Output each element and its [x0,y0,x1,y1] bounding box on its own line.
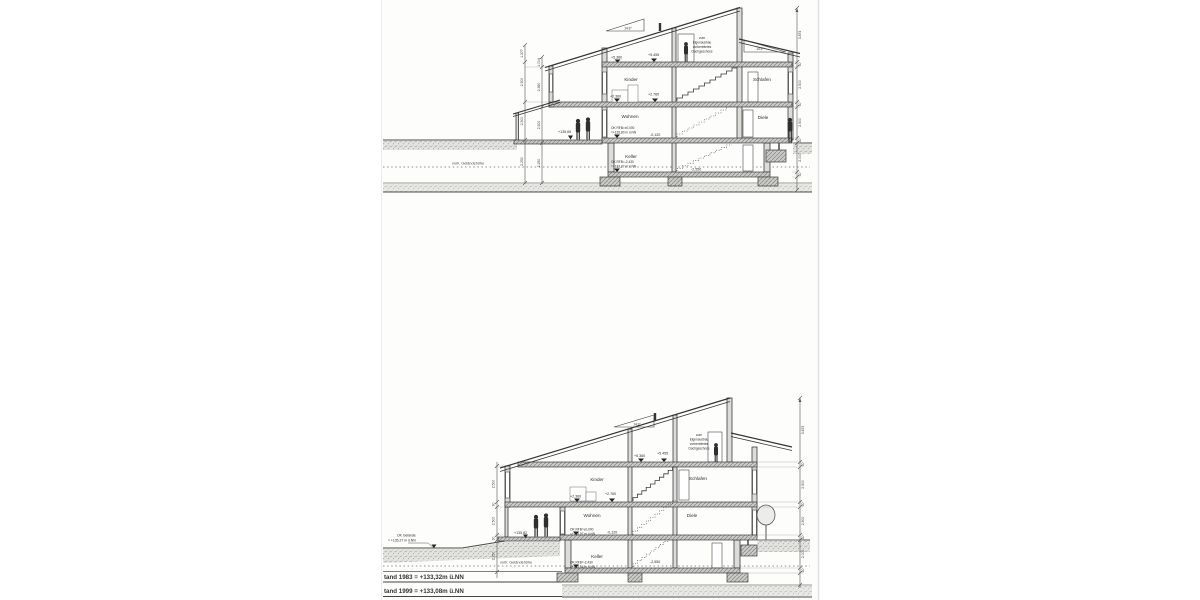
attic-note-line: vorbereitetes [693,45,712,49]
attic-note-line: zum [699,36,705,40]
level-mark: OK RFB=±0,000=+135,97 m ü.NN [570,528,596,537]
dim-label: 30 [798,103,802,107]
dim-label: 30 [798,139,802,143]
svg-text:=+135,97 m ü.NN: =+135,97 m ü.NN [570,532,596,536]
grade-label: OK Gelände [397,534,416,538]
svg-text:-2,550: -2,550 [691,168,701,172]
dim-label: 30 [798,173,802,177]
dim-label: 2.000 [798,153,802,162]
dim-label: 30 [492,503,496,507]
upper-terrain-label: vorh. Geländehöhe [452,162,484,166]
svg-text:+5.455: +5.455 [648,53,659,57]
dim-label: 2.500 [492,517,496,526]
pitch-label: 14.9° [756,47,764,51]
svg-text:+2.360: +2.360 [570,495,581,499]
dim-label: 1.004 [537,58,541,67]
dim-label: 2.500 [520,78,524,87]
attic-note-line: Dachgeschoss [689,447,710,451]
room-label-keller: Keller [625,154,637,159]
room-label-schlafen: Schlafen [689,476,707,481]
dim-label: 2.360 [537,83,541,92]
attic-note-line: vorbereitetes [690,442,709,446]
room-label-wohnen: Wohnen [583,513,600,518]
pitch-label: 14.9° [633,423,641,427]
svg-text:+2.760: +2.760 [605,492,616,496]
dim-label: 30 [801,503,805,507]
svg-text:=+133,37 m ü.NN: =+133,37 m ü.NN [611,165,637,169]
room-label-keller: Keller [591,554,603,559]
svg-text:=+133,54 m ü.NN: =+133,54 m ü.NN [570,565,596,569]
svg-text:=+135,80 m ü.NN: =+135,80 m ü.NN [611,131,637,135]
grade-value: = +135,27 m ü.NN [388,539,416,543]
room-label-schlafen: Schlafen [753,77,771,82]
level-mark: -0,120 [607,531,617,535]
dim-label: 2.500 [520,117,524,126]
dim-label: 2.500 [801,480,805,489]
level-mark: -0,120 [650,133,660,137]
dim-label: 2.250 [520,157,524,166]
level-mark: -2,550 [650,560,660,564]
dim-label: 2.000 [801,550,805,559]
svg-text:OK RFB=-2,430: OK RFB=-2,430 [611,160,634,164]
svg-text:-0,120: -0,120 [650,133,660,137]
dim-label: 3.873 [801,426,805,435]
svg-text:+5.360: +5.360 [634,454,645,458]
svg-text:+5.455: +5.455 [657,452,668,456]
svg-text:OK RFB=-2,430: OK RFB=-2,430 [570,561,593,565]
svg-text:+2.760: +2.760 [648,93,659,97]
dim-label: 30 [801,536,805,540]
attic-note-line: zum [696,433,702,437]
dim-label: 30 [492,537,496,541]
svg-text:+135,82: +135,82 [514,531,527,535]
room-label-wohnen: Wohnen [621,114,638,119]
dim-label: 2.250 [492,552,496,561]
dim-label: 2.500 [798,118,802,127]
attic-note-line: Dachgeschoss [692,50,713,54]
building-section-drawing: vorh. Geländehöhe [0,0,1200,600]
svg-text:+5.360: +5.360 [611,56,622,60]
dim-label: 2.500 [798,80,802,89]
water-level-1999: tand 1999 = +133,08m ü.NN [384,588,464,595]
dim-label: 30 [801,569,805,573]
svg-text:+135,65: +135,65 [558,130,571,134]
pitch-label: 14.9° [624,27,632,31]
svg-text:-2,550: -2,550 [650,560,660,564]
svg-text:-0,120: -0,120 [607,531,617,535]
water-level-1983: tand 1983 = +133,32m ü.NN [384,574,464,581]
dim-label: 1.377 [520,49,524,58]
attic-note-line: Eigenausbau [690,438,709,442]
dim-label: 2.250 [537,159,541,168]
dim-label: 30 [801,463,805,467]
room-label-kinder: Kinder [624,77,638,82]
room-label-diele: Diele [687,513,698,518]
svg-text:OK RFB=±0,000: OK RFB=±0,000 [611,126,635,130]
scanned-plan-page: vorh. Geländehöhe [0,0,1200,600]
dim-label: 2.500 [801,517,805,526]
room-label-diele: Diele [758,115,769,120]
dim-label: 2.500 [537,121,541,130]
dim-label: 2.500 [492,480,496,489]
level-mark: -2,550 [691,168,701,172]
dim-label: 3.873 [798,31,802,40]
lower-terrain-label: vorh. Geländehöhe [500,561,532,565]
attic-note-line: Eigenausbau [693,41,712,45]
svg-text:OK RFB=±0,000: OK RFB=±0,000 [570,528,594,532]
level-mark: OK RFB=-2,430=+133,54 m ü.NN [570,561,596,570]
dim-label: 30 [798,63,802,67]
room-label-kinder: Kinder [590,477,604,482]
svg-text:+2.360: +2.360 [610,95,621,99]
